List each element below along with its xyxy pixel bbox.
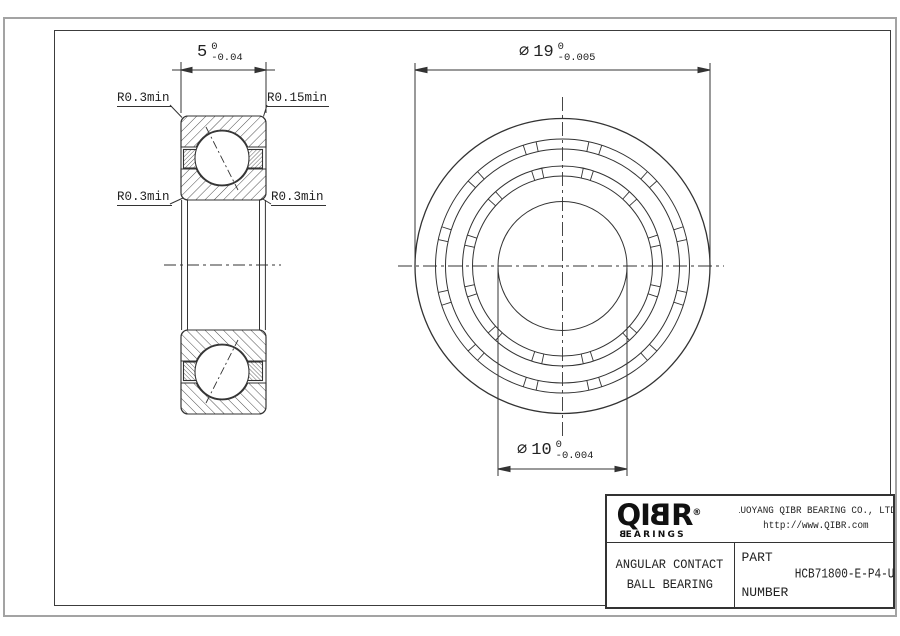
front-view xyxy=(398,97,724,437)
cage-pocket-line xyxy=(536,142,538,152)
cage-pocket-line xyxy=(468,344,475,351)
product-line-1: ANGULAR CONTACT xyxy=(616,558,724,571)
product-line-2: BALL BEARING xyxy=(627,578,713,591)
cage-pocket-line xyxy=(468,181,475,188)
cage-pocket-line xyxy=(478,353,485,360)
cage-pocket-line xyxy=(587,142,589,152)
radius-label-top-left: R0.3min xyxy=(117,92,172,107)
logo-wordmark: QIBR® xyxy=(617,499,739,530)
cage-pocket-line xyxy=(496,192,503,199)
part-label-line2: NUMBER xyxy=(742,586,789,599)
dimension-width-tol-lower: -0.04 xyxy=(211,53,243,64)
title-block: QIBR® BEARINGS LUOYANG QIBR BEARING CO.,… xyxy=(605,494,896,609)
cage-pocket-line xyxy=(442,302,452,305)
company-name: LUOYANG QIBR BEARING CO., LTD xyxy=(739,505,894,517)
radius-label-bottom-right: R0.3min xyxy=(271,191,326,206)
title-block-header-row: QIBR® BEARINGS LUOYANG QIBR BEARING CO.,… xyxy=(607,496,894,543)
cage-pocket-line xyxy=(641,353,648,360)
cage-pocket-line xyxy=(542,168,544,178)
cage-pocket-line xyxy=(590,171,593,181)
part-label-line1: PART xyxy=(742,551,773,564)
dimension-od-tol-upper: 0 xyxy=(558,42,596,53)
radius-label-top-right: R0.15min xyxy=(267,92,329,107)
part-number: HCB71800-E-P4-U xyxy=(794,567,883,582)
cage-pocket-line xyxy=(465,245,475,247)
company-info: LUOYANG QIBR BEARING CO., LTD http://www… xyxy=(739,496,894,542)
cage-pocket-line xyxy=(629,199,636,206)
dimension-bore-value: 10 xyxy=(531,442,551,459)
cage-pocket-line xyxy=(649,181,656,188)
cage-pocket-line xyxy=(623,333,630,340)
title-block-bottom-row: ANGULAR CONTACT BALL BEARING PART NUMBER… xyxy=(607,543,894,607)
cage-pocket-line xyxy=(623,192,630,199)
dimension-width-tol-upper: 0 xyxy=(211,42,243,53)
dimension-outer-diameter: ⌀ 19 0 -0.005 xyxy=(519,44,595,63)
cage-pocket-line xyxy=(674,227,684,230)
company-logo: QIBR® BEARINGS xyxy=(607,496,739,542)
part-number-cell: PART NUMBER HCB71800-E-P4-U xyxy=(735,543,894,607)
dimension-od-value: 19 xyxy=(533,44,553,61)
cage-pocket-line xyxy=(542,354,544,364)
cage-pocket-line xyxy=(532,171,535,181)
cage-pocket-line xyxy=(523,377,526,387)
bearing-section-bottom xyxy=(181,330,266,414)
cage-pocket-line xyxy=(648,294,658,297)
bearing-section-top xyxy=(181,116,266,200)
cage-pocket-line xyxy=(467,235,477,238)
cage-pocket-line xyxy=(478,172,485,179)
dimension-bore-diameter: ⌀ 10 0 -0.004 xyxy=(517,442,593,461)
section-view xyxy=(164,116,281,414)
cage-pocket-line xyxy=(523,145,526,155)
product-description: ANGULAR CONTACT BALL BEARING xyxy=(607,543,735,607)
cage-pocket-line xyxy=(590,352,593,362)
radius-label-bottom-left: R0.3min xyxy=(117,191,172,206)
dimension-od-tol-lower: -0.005 xyxy=(558,53,596,64)
logo-tagline: BEARINGS xyxy=(617,530,739,540)
cage-pocket-line xyxy=(587,380,589,390)
cage-pocket-line xyxy=(467,294,477,297)
company-website: http://www.QIBR.com xyxy=(763,520,868,532)
cage-pocket-line xyxy=(641,172,648,179)
drawing-sheet: 5 0 -0.04 ⌀ 19 0 -0.005 ⌀ 10 0 -0.004 R0… xyxy=(0,0,900,636)
cage-pocket-line xyxy=(496,333,503,340)
cage-pocket-line xyxy=(488,199,495,206)
dimension-bore-tol-lower: -0.004 xyxy=(556,451,594,462)
cage-pocket-line xyxy=(677,290,687,292)
cage-pocket-line xyxy=(438,290,448,292)
cage-pocket-line xyxy=(536,380,538,390)
cage-pocket-line xyxy=(649,344,656,351)
registered-trademark-symbol: ® xyxy=(692,508,700,518)
dimension-width: 5 0 -0.04 xyxy=(197,44,243,63)
cage-pocket-line xyxy=(651,245,661,247)
cage-pocket-line xyxy=(532,352,535,362)
diameter-symbol: ⌀ xyxy=(519,44,529,61)
cage-pocket-line xyxy=(677,240,687,242)
cage-pocket-line xyxy=(648,235,658,238)
diameter-symbol: ⌀ xyxy=(517,442,527,459)
cage-pocket-line xyxy=(629,326,636,333)
cage-pocket-line xyxy=(438,240,448,242)
cage-pocket-line xyxy=(599,145,602,155)
cage-pocket-line xyxy=(581,168,583,178)
dimension-width-value: 5 xyxy=(197,44,207,61)
dimension-bore-tol-upper: 0 xyxy=(556,440,594,451)
cage-pocket-line xyxy=(465,285,475,287)
cage-pocket-line xyxy=(651,285,661,287)
cage-pocket-line xyxy=(442,227,452,230)
cage-pocket-line xyxy=(674,302,684,305)
cage-section-right xyxy=(248,150,263,169)
cage-pocket-line xyxy=(599,377,602,387)
cage-pocket-line xyxy=(488,326,495,333)
cage-pocket-line xyxy=(581,354,583,364)
